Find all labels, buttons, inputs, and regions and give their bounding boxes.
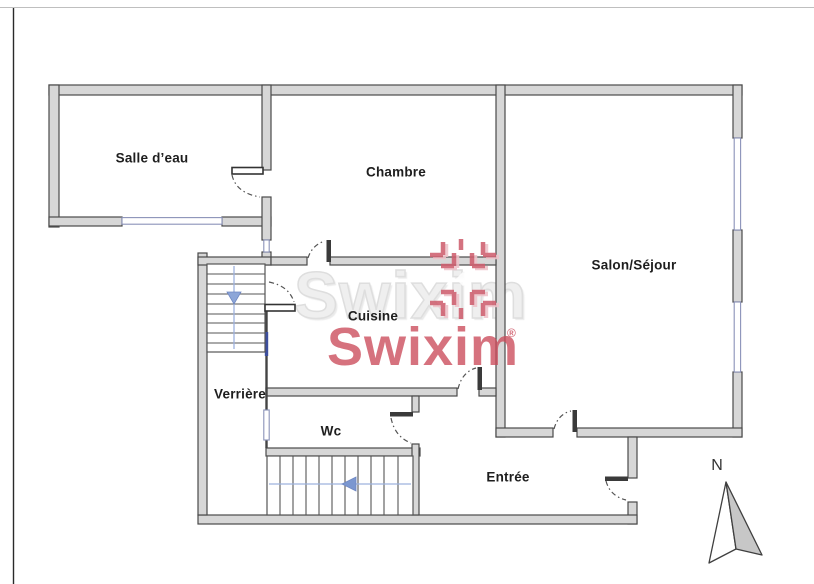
staircase-lower-outline <box>267 456 413 515</box>
wall-salon-bottom-right <box>577 428 742 437</box>
wall-wc-right-upper <box>412 396 419 412</box>
door-arc-wc <box>391 418 411 443</box>
room-label-cuisine: Cuisine <box>348 309 398 324</box>
door-leaf-salon-entree <box>573 410 578 432</box>
wall-salon-bottom-left <box>496 428 553 437</box>
wall-left-outer <box>49 85 59 227</box>
staircase-upper-outline <box>207 264 265 352</box>
window-salon-lower <box>734 302 740 372</box>
wall-verriere-left <box>198 253 207 515</box>
wall-right-outer-mid <box>733 230 742 302</box>
wall-top-outer <box>49 85 742 95</box>
door-arc-chambre <box>308 241 325 258</box>
door-leaf-entrance <box>605 477 628 482</box>
floor-plan-drawing <box>0 0 814 584</box>
window-salledeau <box>122 218 222 225</box>
wall-salledeau-chambre-upper <box>262 85 271 170</box>
staircase-upper <box>207 264 265 352</box>
window-stairwell <box>264 240 269 252</box>
room-label-salon-sejour: Salon/Séjour <box>592 258 677 273</box>
swixim-watermark-pink: Swixim <box>327 320 519 374</box>
wall-cuisine-top-left <box>271 257 307 265</box>
door-arc-stair-landing <box>269 282 294 302</box>
room-label-chambre: Chambre <box>366 165 426 180</box>
wall-right-outer-top <box>733 85 742 138</box>
door-arc-entrance <box>606 481 626 500</box>
starburst-center-diamond <box>456 272 470 286</box>
wall-right-outer-bottom <box>733 372 742 437</box>
wall-wc-bottom <box>266 448 420 456</box>
staircase-lower <box>267 456 413 515</box>
swixim-logo-starburst <box>430 239 499 319</box>
door-leaf-stair-landing <box>265 305 295 312</box>
door-leaf-salledeau <box>232 168 263 175</box>
floor-plan-page: Swixim <box>0 0 814 584</box>
room-label-salle-deau: Salle d’eau <box>116 151 189 166</box>
wall-cuisine-bottom-left <box>266 388 457 396</box>
room-label-entree: Entrée <box>486 470 529 485</box>
north-arrow <box>709 482 762 563</box>
registered-trademark-icon: ® <box>507 326 516 340</box>
wall-entree-right-upper <box>628 437 637 478</box>
wall-chambre-salon-divider <box>496 85 505 437</box>
door-arc-salledeau <box>232 175 260 197</box>
room-label-wc: Wc <box>321 424 342 439</box>
verriere-window-light <box>264 410 269 440</box>
door-arc-salon-entree <box>554 411 571 429</box>
wall-bottom-outer <box>198 515 637 524</box>
wall-salledeau-chambre-lower <box>262 197 271 240</box>
window-salon-upper <box>734 138 740 230</box>
north-label: N <box>711 457 723 475</box>
door-leaf-chambre <box>327 240 332 262</box>
door-leaf-wc <box>390 412 413 417</box>
wall-salledeau-bottom-left <box>49 217 122 226</box>
room-label-verriere: Verrière <box>214 387 266 402</box>
